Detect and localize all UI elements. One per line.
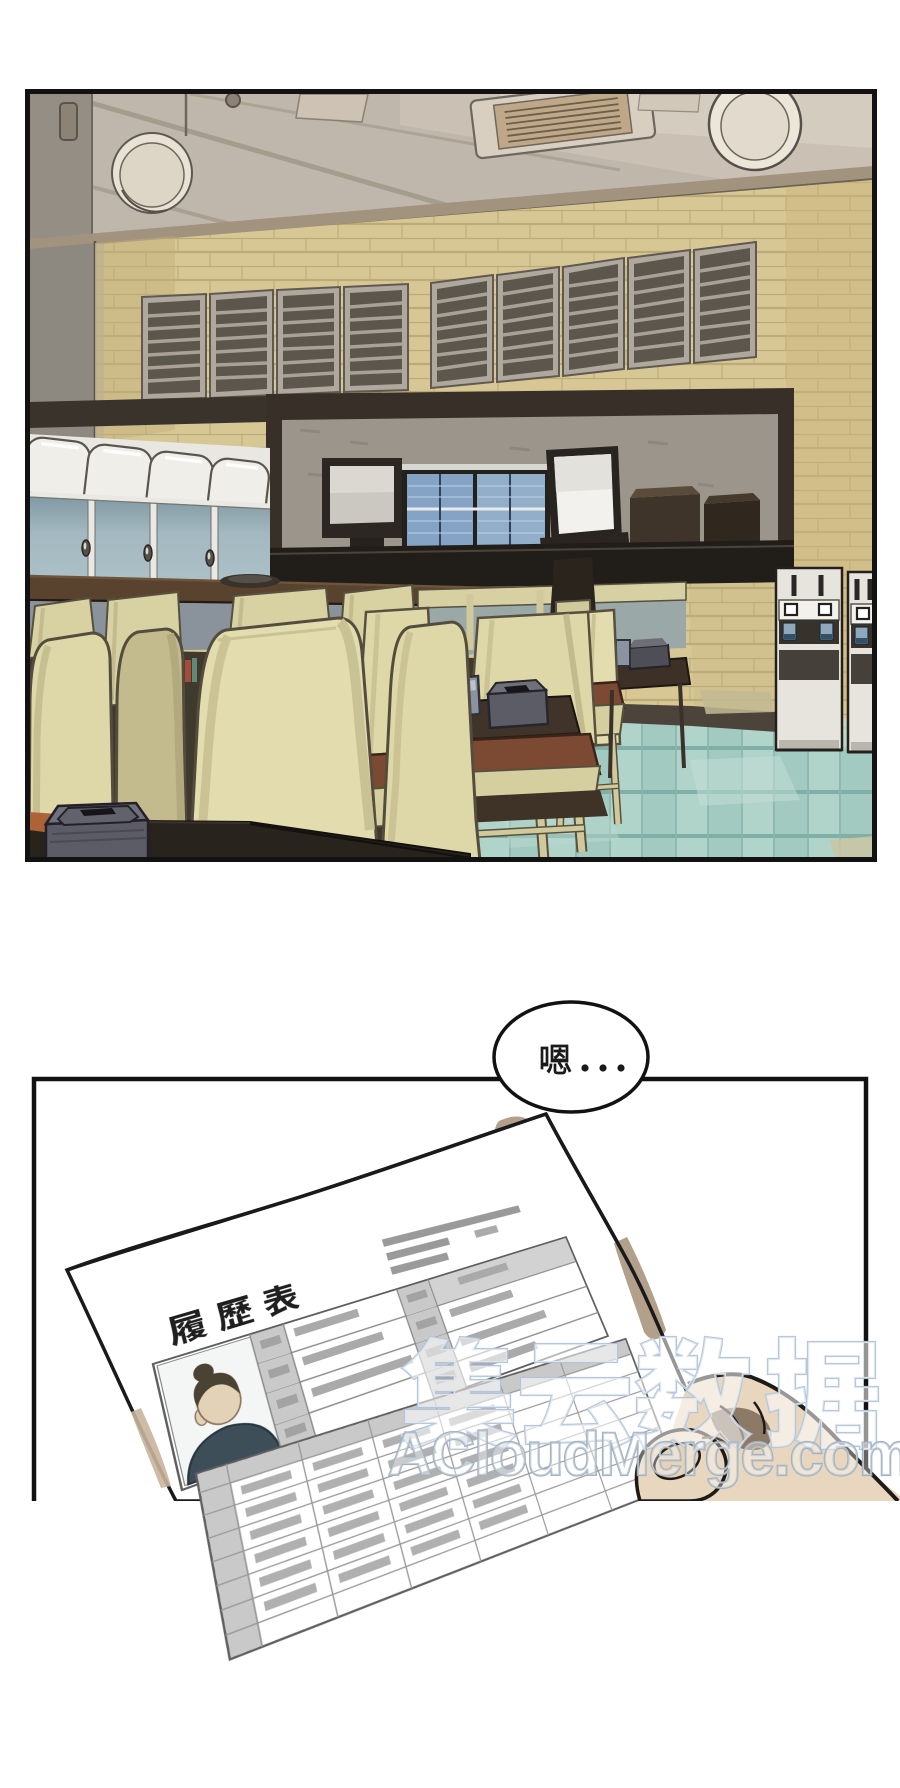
svg-text:ACloudMerge.com: ACloudMerge.com	[388, 1420, 900, 1488]
